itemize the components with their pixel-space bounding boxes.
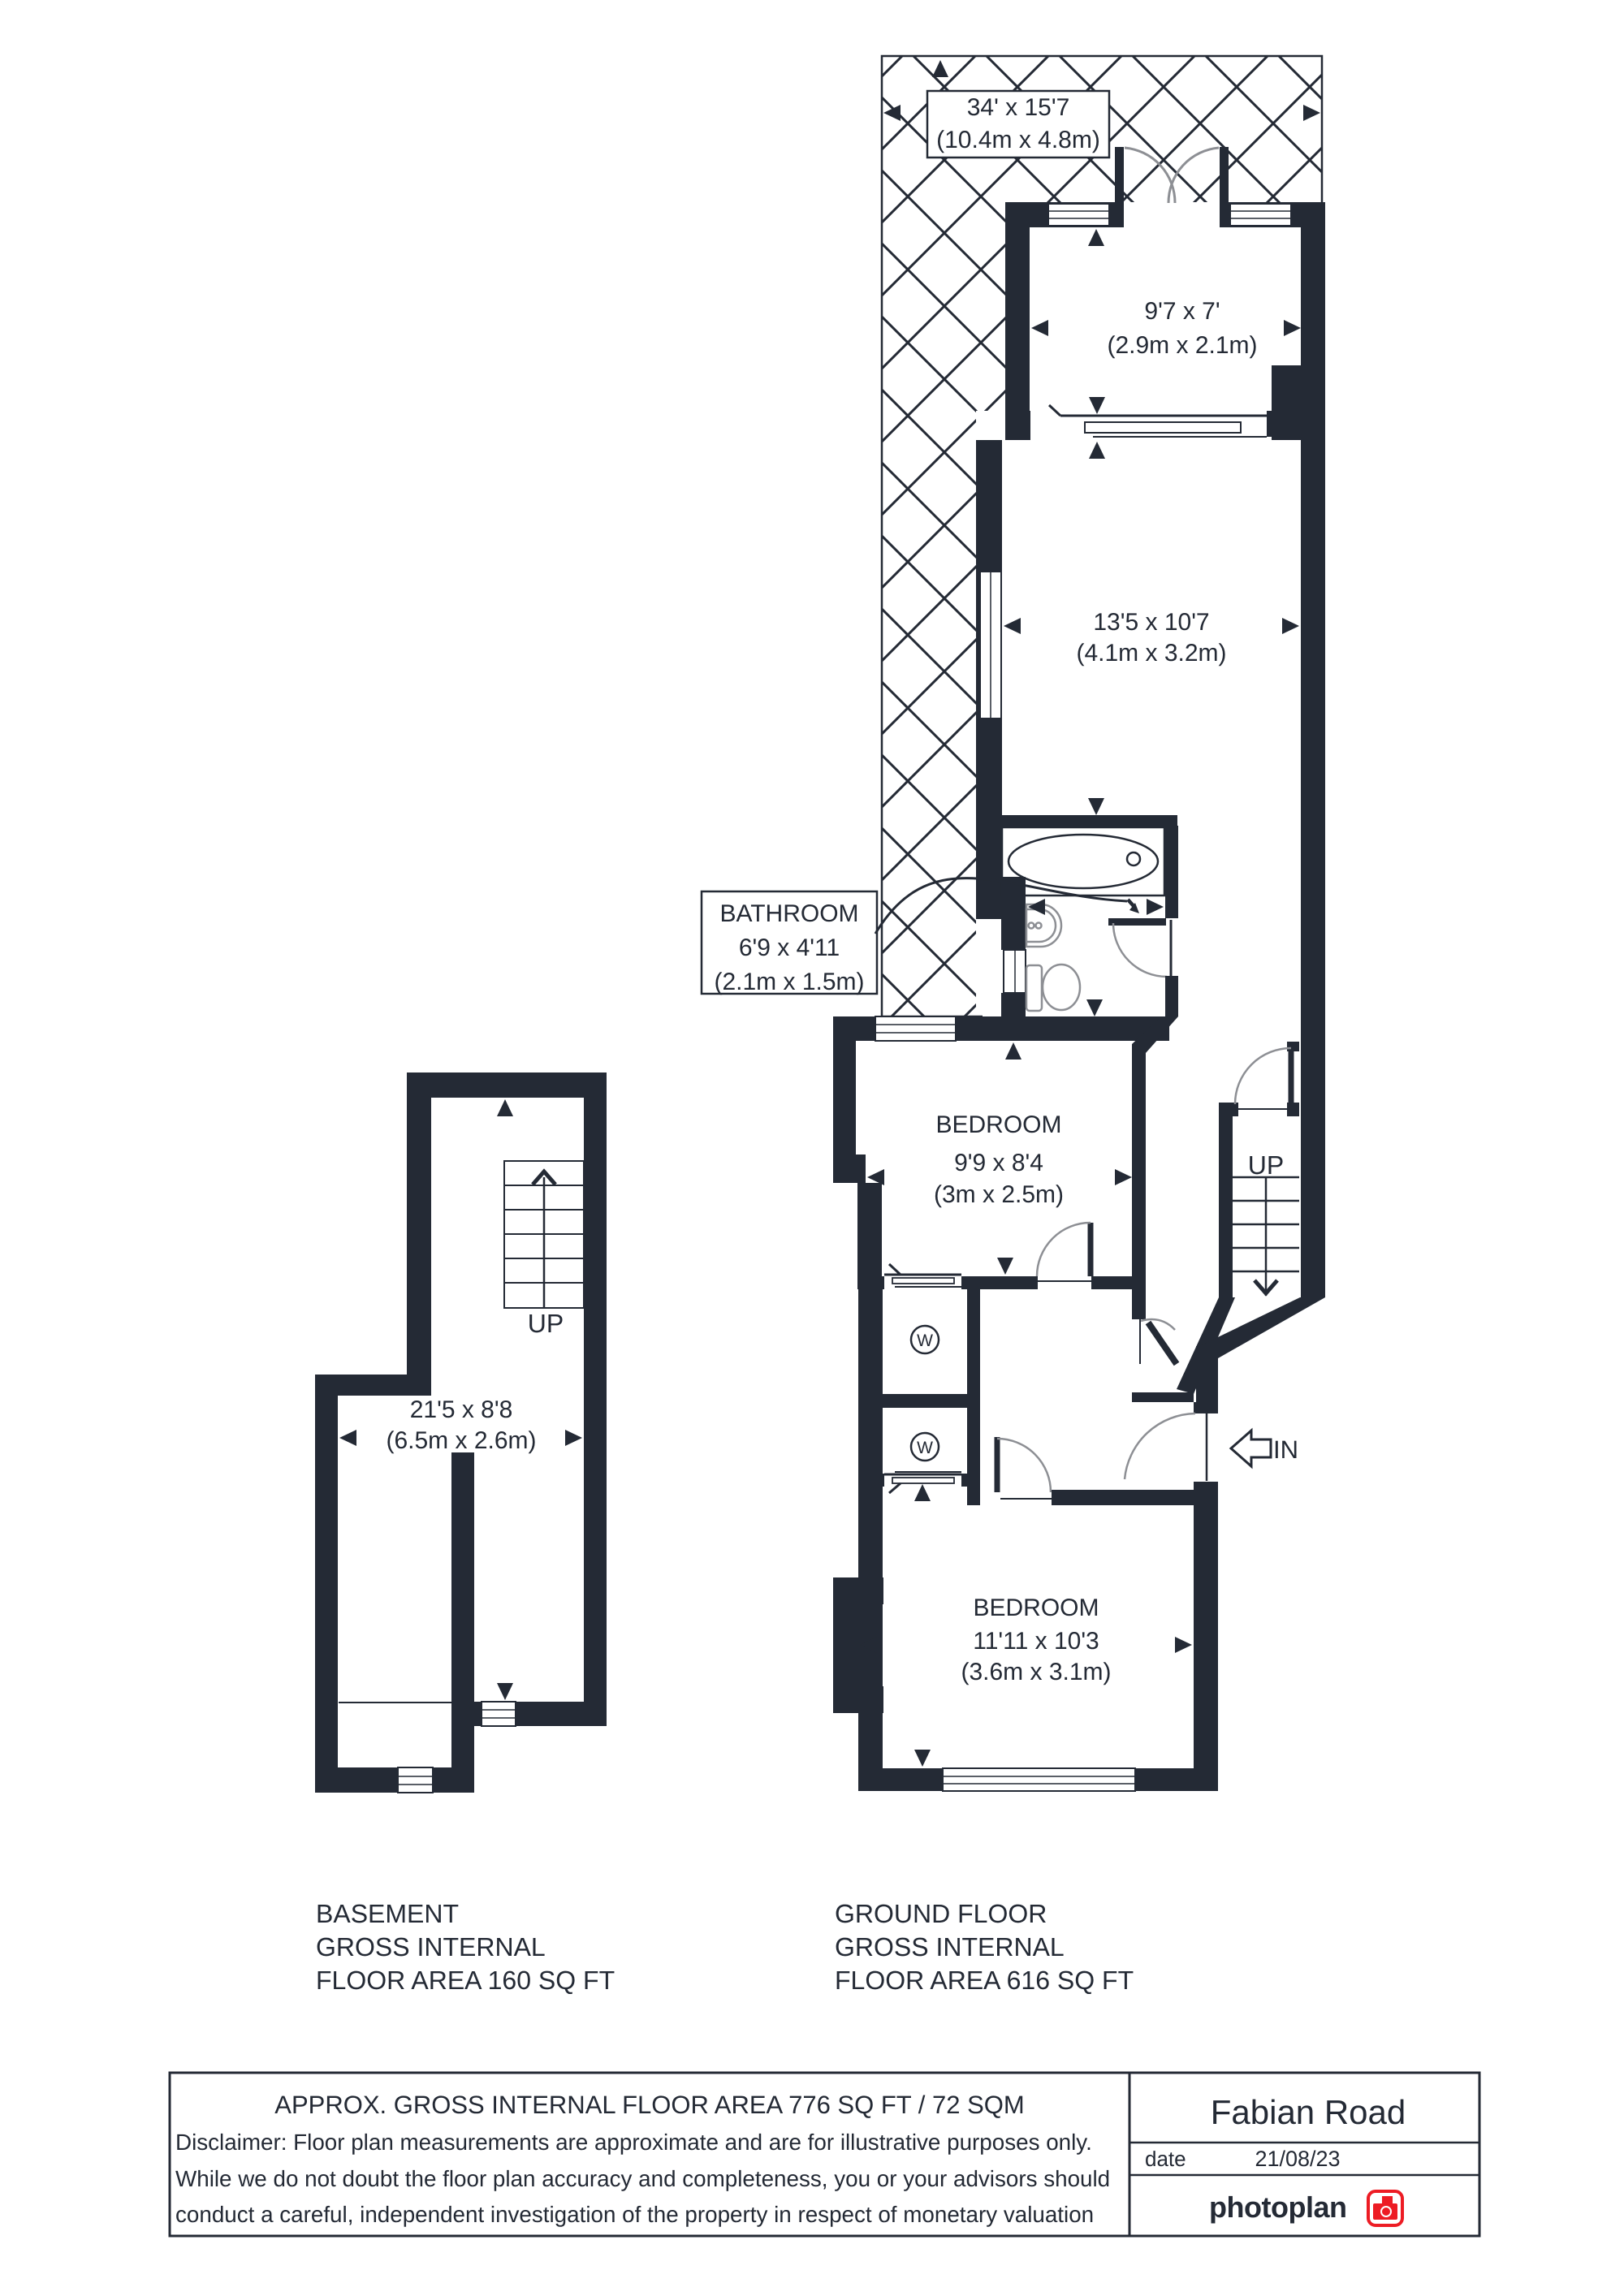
svg-text:9'9 x 8'4: 9'9 x 8'4 xyxy=(954,1150,1043,1176)
svg-text:BATHROOM: BATHROOM xyxy=(719,900,858,927)
svg-text:date: date xyxy=(1145,2147,1186,2171)
svg-text:(6.5m x 2.6m): (6.5m x 2.6m) xyxy=(386,1427,536,1454)
svg-text:6'9 x 4'11: 6'9 x 4'11 xyxy=(739,934,840,961)
svg-text:BASEMENT: BASEMENT xyxy=(316,1899,459,1928)
svg-text:(3.6m x 3.1m): (3.6m x 3.1m) xyxy=(961,1659,1111,1685)
svg-text:UP: UP xyxy=(528,1309,564,1338)
svg-text:13'5 x 10'7: 13'5 x 10'7 xyxy=(1093,609,1209,636)
svg-text:BEDROOM: BEDROOM xyxy=(973,1595,1099,1621)
svg-text:Disclaimer: Floor plan measure: Disclaimer: Floor plan measurements are … xyxy=(175,2130,1092,2155)
svg-text:(2.9m x 2.1m): (2.9m x 2.1m) xyxy=(1107,332,1257,359)
svg-text:GROSS INTERNAL: GROSS INTERNAL xyxy=(316,1932,546,1962)
svg-text:IN: IN xyxy=(1273,1435,1298,1464)
svg-text:(3m x 2.5m): (3m x 2.5m) xyxy=(934,1181,1064,1208)
svg-text:11'11 x 10'3: 11'11 x 10'3 xyxy=(973,1628,1099,1655)
svg-text:21'5 x 8'8: 21'5 x 8'8 xyxy=(410,1396,513,1423)
svg-text:GROSS INTERNAL: GROSS INTERNAL xyxy=(835,1932,1065,1962)
svg-text:21/08/23: 21/08/23 xyxy=(1255,2147,1340,2171)
svg-text:APPROX. GROSS INTERNAL FLOOR A: APPROX. GROSS INTERNAL FLOOR AREA 776 SQ… xyxy=(274,2091,1024,2119)
svg-text:FLOOR AREA 616 SQ FT: FLOOR AREA 616 SQ FT xyxy=(835,1966,1134,1995)
svg-text:FLOOR AREA 160 SQ FT: FLOOR AREA 160 SQ FT xyxy=(316,1966,615,1995)
svg-text:(2.1m x 1.5m): (2.1m x 1.5m) xyxy=(714,969,864,995)
svg-text:UP: UP xyxy=(1248,1150,1284,1180)
svg-text:(4.1m x 3.2m): (4.1m x 3.2m) xyxy=(1076,640,1226,667)
svg-text:BEDROOM: BEDROOM xyxy=(935,1111,1061,1138)
svg-text:photoplan: photoplan xyxy=(1209,2190,1346,2224)
svg-text:GROUND FLOOR: GROUND FLOOR xyxy=(835,1899,1047,1928)
svg-text:(10.4m x 4.8m): (10.4m x 4.8m) xyxy=(936,127,1100,153)
svg-text:9'7 x 7': 9'7 x 7' xyxy=(1144,298,1220,325)
svg-text:W: W xyxy=(917,1439,933,1457)
svg-text:Fabian Road: Fabian Road xyxy=(1211,2093,1406,2131)
svg-text:While we do not doubt the floo: While we do not doubt the floor plan acc… xyxy=(175,2166,1110,2191)
svg-text:conduct a careful, independent: conduct a careful, independent investiga… xyxy=(175,2202,1094,2227)
svg-text:34' x 15'7: 34' x 15'7 xyxy=(967,94,1070,121)
svg-text:W: W xyxy=(917,1331,933,1350)
